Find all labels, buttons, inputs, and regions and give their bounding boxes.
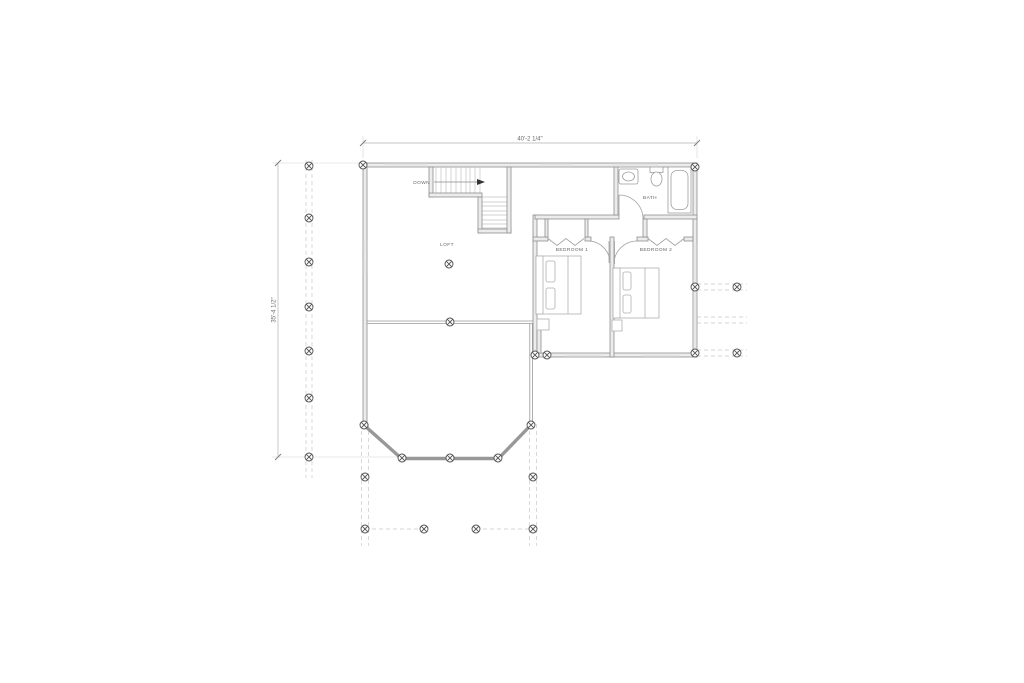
column-marker-icon [420,525,428,533]
column-marker-icon [691,283,699,291]
bath-door-swing [619,195,643,219]
wall-segment [363,163,367,426]
stair-wall [507,167,511,233]
bedroom1-nightstand [537,319,549,330]
stair-wall [429,193,482,197]
furniture [536,256,659,331]
stair-direction-arrow-icon [477,179,485,185]
column-marker-icon [446,454,454,462]
deck-railing-angled [365,426,402,459]
column-marker-icon [445,260,453,268]
column-marker-icon [446,318,454,326]
wall-segment [585,219,588,237]
loft-label: LOFT [440,242,454,248]
stair-down-label: DOWN [413,180,430,186]
dimension-top: 40'-2 1/4" [360,136,700,158]
column-marker-icon [733,283,741,291]
bedroom2-label: BEDROOM 2 [640,247,672,253]
top-width-dimension-text: 40'-2 1/4" [517,137,542,143]
column-marker-icon [529,525,537,533]
bedroom1-label: BEDROOM 1 [556,247,588,253]
deck-railing-angled [498,426,530,459]
bathroom-fixtures [619,167,691,213]
bathtub-basin [671,171,688,210]
bedroom2-pillow [623,295,631,313]
dimension-left: 35'-4 1/2" [272,160,401,460]
stairs: DOWN [413,167,511,233]
wall-segment [684,237,693,241]
column-marker-icon [305,214,313,222]
column-marker-icon [305,303,313,311]
bedroom1-pillow [546,288,555,309]
column-marker-icon [361,525,369,533]
wall-segment [643,219,647,237]
column-marker-icon [360,421,368,429]
wall-segment [585,237,591,241]
deck-railings [365,321,533,459]
column-marker-icon [398,454,406,462]
bedroom2-bed-headboard [613,268,620,318]
bedroom2-closet-bifold-doors [648,239,684,246]
floor-plan-drawing: 40'-2 1/4" 35'-4 1/2" [0,0,1024,683]
wall-segment [535,215,619,219]
column-marker-icon [527,421,535,429]
column-marker-icon [472,525,480,533]
bedroom1-closet-bifold-doors [548,239,584,246]
bedroom1-bed-headboard [536,256,543,314]
column-marker-icon [543,351,551,359]
column-marker-icon [305,394,313,402]
bedroom2-pillow [623,272,631,290]
wall-segment [637,237,648,241]
stair-wall [478,229,511,233]
bathroom-sink-basin [623,172,635,181]
left-height-dimension-text: 35'-4 1/2" [272,297,278,322]
floor-plan-page: 40'-2 1/4" 35'-4 1/2" [0,0,1024,683]
wall-segment [533,237,548,241]
column-marker-icon [305,162,313,170]
column-marker-icon [305,258,313,266]
wall-segment [614,167,618,215]
stair-wall [478,197,482,233]
bedroom1-door-swing [588,241,610,263]
toilet-bowl [651,172,662,186]
column-marker-icon [733,349,741,357]
column-marker-icon [361,473,369,481]
column-marker-icon [531,351,539,359]
column-marker-icon [305,347,313,355]
column-marker-icon [691,163,699,171]
column-marker-icon [691,349,699,357]
column-marker-icon [494,454,502,462]
bedroom2-nightstand [612,320,622,331]
column-marker-icon [529,473,537,481]
bedroom1-pillow [546,261,555,282]
bedroom2-door-swing [614,241,637,264]
column-marker-icon [359,161,367,169]
column-marker-icon [305,453,313,461]
wall-segment [644,215,697,219]
wall-segment [545,219,548,237]
bath-label: BATH [643,195,657,201]
